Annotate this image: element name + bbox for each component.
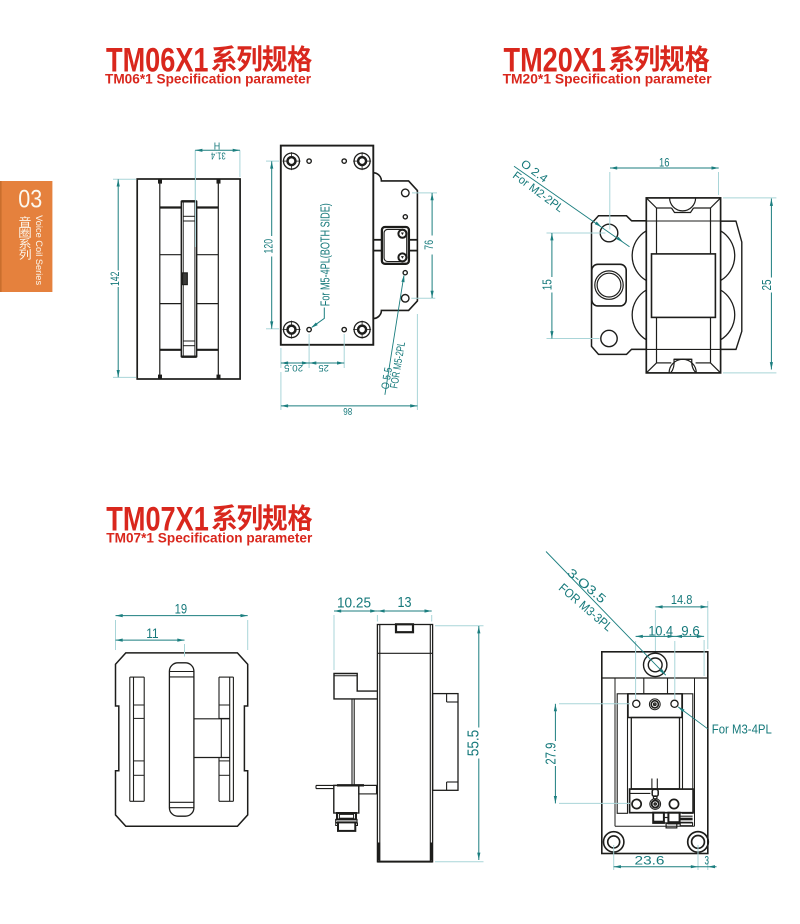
svg-text:20.5: 20.5 [284,362,303,373]
svg-text:76: 76 [422,240,436,250]
svg-text:25: 25 [760,279,774,290]
svg-text:TM07*1 Specification parameter: TM07*1 Specification parameter [106,531,313,546]
svg-text:3: 3 [705,855,710,867]
svg-text:Voice Coil Series: Voice Coil Series [34,215,44,285]
svg-text:9.6: 9.6 [681,623,700,638]
svg-text:10.25: 10.25 [337,596,371,612]
svg-text:27.9: 27.9 [543,743,560,765]
svg-text:11: 11 [146,626,158,641]
svg-text:31.4: 31.4 [210,150,225,161]
svg-text:16: 16 [659,156,670,170]
svg-text:TM06*1 Specification parameter: TM06*1 Specification parameter [105,72,312,87]
svg-text:19: 19 [175,602,188,617]
svg-text:120: 120 [262,239,275,254]
svg-text:23.6: 23.6 [635,854,665,868]
svg-text:For M5-4PL(BOTH SIDE): For M5-4PL(BOTH SIDE) [319,203,333,306]
svg-text:TM20*1 Specification parameter: TM20*1 Specification parameter [503,72,713,87]
svg-text:10.4: 10.4 [648,623,673,638]
svg-text:14.8: 14.8 [671,592,693,607]
svg-text:142: 142 [108,272,122,287]
svg-text:55.5: 55.5 [465,730,482,757]
svg-text:25: 25 [318,362,329,373]
svg-text:03: 03 [18,186,42,214]
svg-text:15: 15 [540,279,554,290]
svg-text:13: 13 [398,595,412,611]
svg-text:For M3-4PL: For M3-4PL [712,723,772,737]
svg-text:86: 86 [343,405,352,416]
